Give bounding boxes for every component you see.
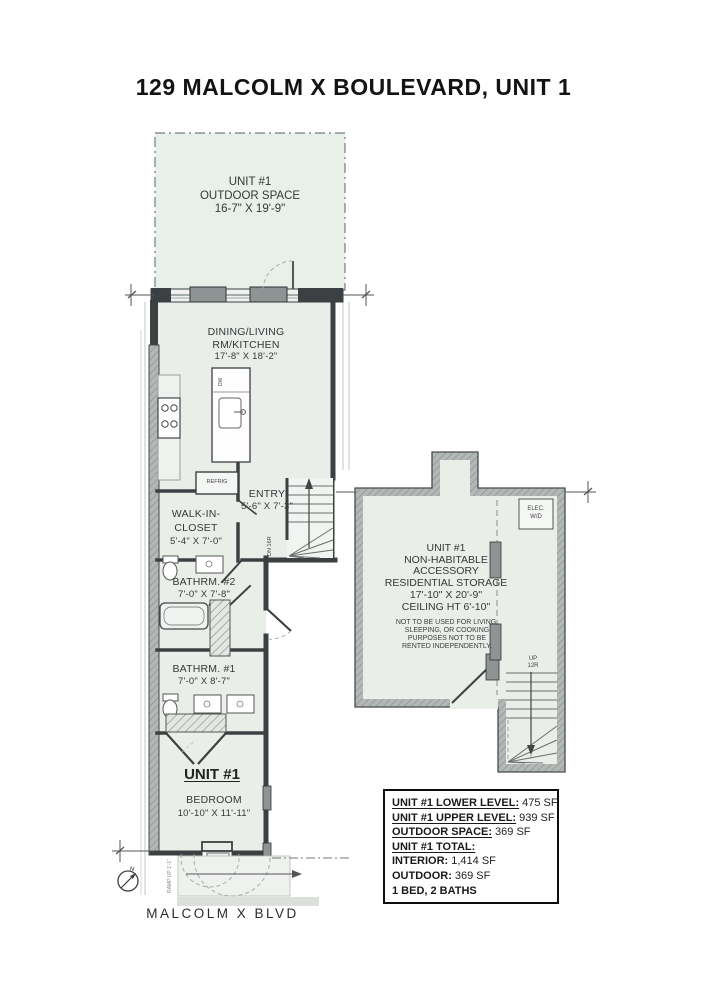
- storage-note-line1: NOT TO BE USED FOR LIVING,: [378, 619, 516, 627]
- closet-shelf: [166, 714, 226, 732]
- bath1-name: BATHRM. #1: [150, 663, 258, 676]
- compass-icon: [118, 871, 138, 891]
- unit1-label: UNIT #1: [154, 766, 270, 783]
- outdoor-space-unit: UNIT #1: [155, 176, 345, 190]
- up-riser-count: 12R: [521, 663, 545, 670]
- bedroom-dims: 10'-10" X 11'-11": [146, 807, 282, 821]
- summary-row-interior: INTERIOR:1,414 SF: [392, 854, 550, 869]
- bath1-dims: 7'-0" X 8'-7": [150, 676, 258, 689]
- summary-row-bed-bath: 1 BED, 2 BATHS: [392, 884, 550, 899]
- street-label: MALCOLM X BLVD: [120, 906, 325, 921]
- shower-icon: [210, 600, 230, 656]
- closet-label: WALK-IN- CLOSET 5'-4" X 7'-0": [154, 507, 238, 549]
- storage-note-line2: SLEEPING, OR COOKING: [378, 627, 516, 635]
- summary-label: OUTDOOR SPACE:: [392, 826, 492, 838]
- summary-row-outdoor: OUTDOOR:369 SF: [392, 869, 550, 884]
- closet-dims: 5'-4" X 7'-0": [154, 535, 238, 549]
- page-title: 129 MALCOLM X BOULEVARD, UNIT 1: [0, 74, 707, 101]
- elec-label: ELEC.: [519, 506, 553, 514]
- summary-row-upper-level: UNIT #1 UPPER LEVEL:939 SF: [392, 811, 550, 826]
- wd-label: W/D: [519, 514, 553, 522]
- range-icon: [158, 398, 180, 438]
- up-label: UP: [521, 656, 545, 663]
- entry-name: ENTRY: [228, 488, 306, 501]
- refrig-label: REFRIG: [196, 479, 238, 485]
- summary-value: 475 SF: [522, 797, 557, 809]
- floor-plan-page: 129 MALCOLM X BOULEVARD, UNIT 1 UNIT #1 …: [0, 0, 707, 1000]
- up-stairs-label: UP 12R: [521, 656, 545, 670]
- sidewalk: [177, 897, 319, 906]
- summary-value: 1,414 SF: [451, 855, 496, 867]
- sink-icon: [196, 556, 223, 573]
- summary-value: 369 SF: [455, 870, 490, 882]
- bath2-label: BATHRM. #2 7'-0" X 7'-8": [150, 576, 258, 601]
- bath2-dims: 7'-0" X 7'-8": [150, 589, 258, 602]
- summary-row-total: UNIT #1 TOTAL:: [392, 840, 550, 855]
- summary-value: 369 SF: [495, 826, 530, 838]
- closet-line2: CLOSET: [154, 521, 238, 535]
- storage-label: UNIT #1 NON-HABITABLE ACCESSORY RESIDENT…: [364, 543, 528, 613]
- sink-icon: [219, 398, 241, 428]
- side-door: [266, 608, 291, 639]
- summary-label: 1 BED, 2 BATHS: [392, 885, 477, 897]
- outdoor-space-name: OUTDOOR SPACE: [155, 190, 345, 204]
- floor-plan-drawing: [0, 0, 707, 1000]
- dn-stairs-label: DN 16R: [267, 531, 273, 561]
- summary-label: UNIT #1 LOWER LEVEL:: [392, 797, 519, 809]
- summary-label: INTERIOR:: [392, 855, 448, 867]
- bedroom-name: BEDROOM: [146, 793, 282, 807]
- summary-label: OUTDOOR:: [392, 870, 452, 882]
- elec-wd-label: ELEC. W/D: [519, 506, 553, 521]
- summary-label: UNIT #1 UPPER LEVEL:: [392, 812, 516, 824]
- compass-n-label: N: [126, 867, 138, 873]
- outdoor-space-dims: 16-7" X 19'-9": [155, 203, 345, 217]
- ramp-arrow-icon: [292, 870, 302, 878]
- dining-label: DINING/LIVING RM/KITCHEN 17'-8" X 18'-2": [160, 326, 332, 364]
- dishwasher-label: DW: [218, 374, 224, 390]
- bath2-name: BATHRM. #2: [150, 576, 258, 589]
- storage-note-line4: RENTED INDEPENDENTLY.: [378, 643, 516, 651]
- storage-ceiling: CEILING HT 6'-10": [364, 602, 528, 614]
- storage-line1: UNIT #1: [364, 543, 528, 555]
- storage-note: NOT TO BE USED FOR LIVING, SLEEPING, OR …: [378, 619, 516, 651]
- area-summary-box: UNIT #1 LOWER LEVEL:475 SF UNIT #1 UPPER…: [383, 789, 559, 904]
- sink-icon: [227, 695, 254, 713]
- entry-dims: 5'-6" X 7'-3": [228, 501, 306, 514]
- closet-line1: WALK-IN-: [154, 507, 238, 521]
- sink-icon: [194, 695, 221, 713]
- summary-row-outdoor-space: OUTDOOR SPACE:369 SF: [392, 825, 550, 840]
- ramp-label: RAMP UP 1'-1": [167, 856, 173, 896]
- dining-line2: RM/KITCHEN: [160, 339, 332, 352]
- entry-label: ENTRY 5'-6" X 7'-3": [228, 488, 306, 513]
- summary-value: 939 SF: [519, 812, 554, 824]
- storage-dims: 17'-10" X 20'-9": [364, 590, 528, 602]
- dining-line1: DINING/LIVING: [160, 326, 332, 339]
- bath1-label: BATHRM. #1 7'-0" X 8'-7": [150, 663, 258, 688]
- dining-dims: 17'-8" X 18'-2": [160, 351, 332, 364]
- bedroom-label: BEDROOM 10'-10" X 11'-11": [146, 793, 282, 821]
- outdoor-space-label: UNIT #1 OUTDOOR SPACE 16-7" X 19'-9": [155, 176, 345, 217]
- summary-label: UNIT #1 TOTAL:: [392, 841, 475, 853]
- storage-note-line3: PURPOSES NOT TO BE: [378, 635, 516, 643]
- summary-row-lower-level: UNIT #1 LOWER LEVEL:475 SF: [392, 796, 550, 811]
